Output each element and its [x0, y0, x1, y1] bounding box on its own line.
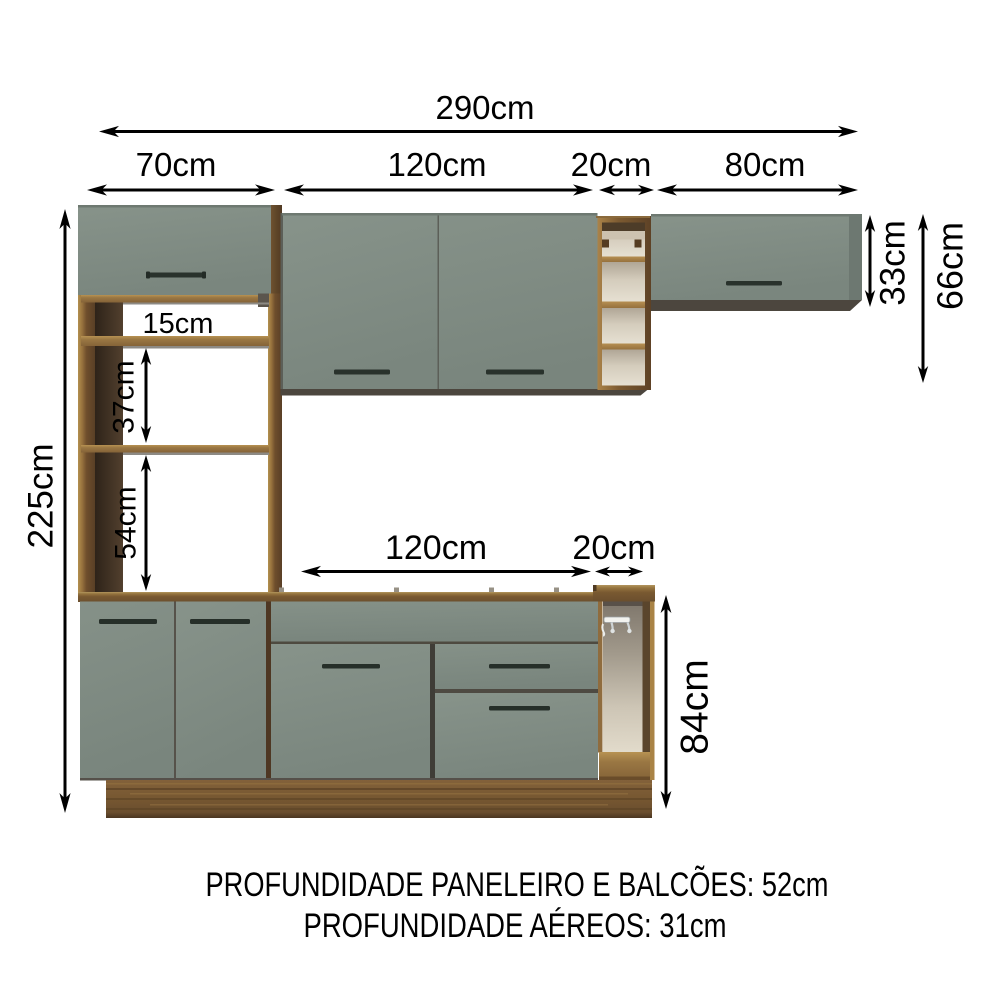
svg-text:70cm: 70cm [136, 146, 217, 183]
svg-text:37cm: 37cm [108, 360, 141, 433]
svg-text:20cm: 20cm [572, 529, 655, 567]
svg-text:225cm: 225cm [22, 443, 61, 548]
svg-text:290cm: 290cm [435, 89, 534, 126]
svg-text:PROFUNDIDADE AÉREOS: 31cm: PROFUNDIDADE AÉREOS: 31cm [304, 907, 727, 945]
svg-text:84cm: 84cm [674, 659, 717, 754]
svg-text:33cm: 33cm [874, 220, 913, 306]
svg-text:80cm: 80cm [725, 146, 806, 183]
svg-text:PROFUNDIDADE PANELEIRO E BALCÕ: PROFUNDIDADE PANELEIRO E BALCÕES: 52cm [206, 866, 829, 904]
svg-text:66cm: 66cm [930, 222, 971, 310]
svg-text:15cm: 15cm [143, 308, 214, 340]
svg-text:120cm: 120cm [385, 529, 487, 567]
svg-text:20cm: 20cm [571, 146, 652, 183]
svg-text:120cm: 120cm [387, 146, 486, 183]
svg-text:54cm: 54cm [110, 486, 143, 559]
